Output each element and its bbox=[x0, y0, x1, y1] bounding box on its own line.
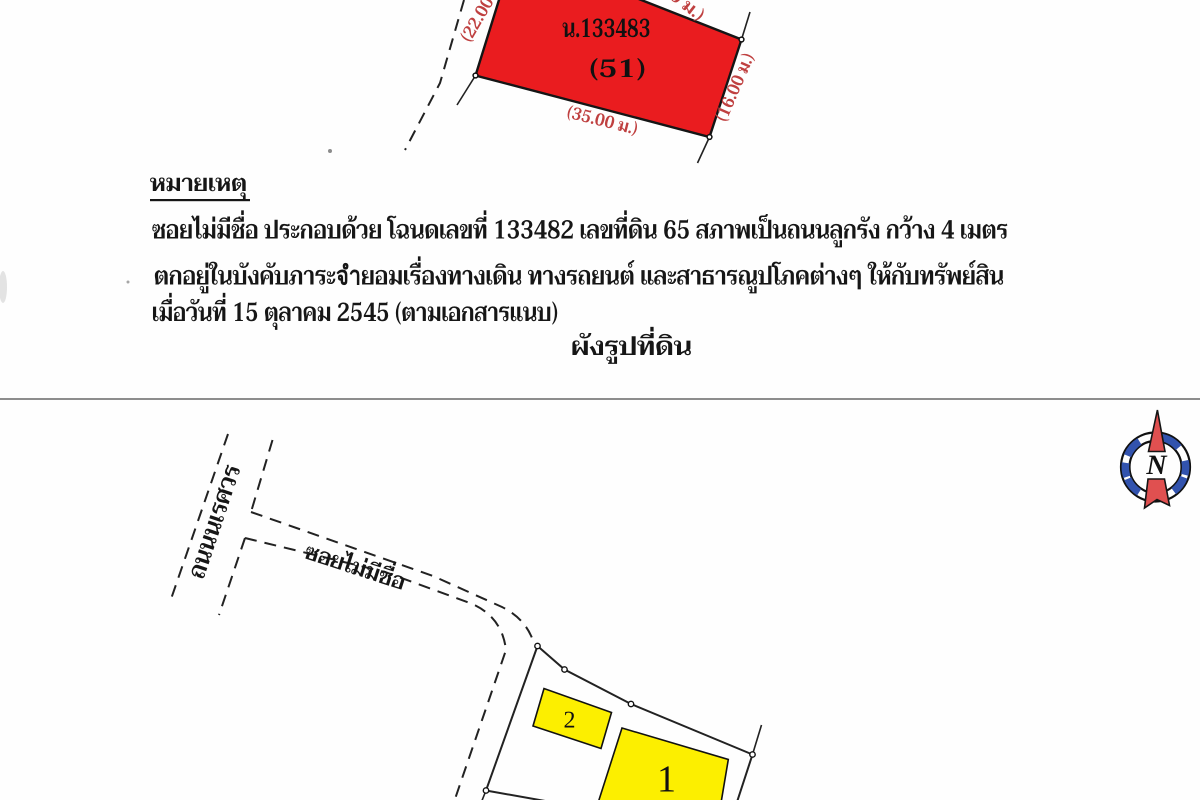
svg-text:ถนนนเรศวร: ถนนนเรศวร bbox=[177, 459, 254, 584]
svg-text:1: 1 bbox=[657, 759, 676, 800]
svg-text:ซอยไม่มีชื่อ ประกอบด้วย โฉนดเล: ซอยไม่มีชื่อ ประกอบด้วย โฉนดเลขที่ 13348… bbox=[152, 209, 1008, 253]
svg-text:ซอยไม่มีชื่อ: ซอยไม่มีชื่อ bbox=[300, 533, 411, 602]
svg-text:N: N bbox=[1145, 450, 1168, 481]
svg-text:2: 2 bbox=[564, 708, 576, 734]
svg-text:น.133483: น.133483 bbox=[563, 7, 651, 51]
svg-text:(51): (51) bbox=[590, 49, 646, 91]
svg-text:ผังรูปที่ดิน: ผังรูปที่ดิน bbox=[571, 325, 692, 369]
svg-text:หมายเหตุ: หมายเหตุ bbox=[150, 163, 247, 204]
svg-text:เมื่อวันที่ 15 ตุลาคม 2545 (ตา: เมื่อวันที่ 15 ตุลาคม 2545 (ตามเอกสารแนบ… bbox=[152, 291, 558, 335]
